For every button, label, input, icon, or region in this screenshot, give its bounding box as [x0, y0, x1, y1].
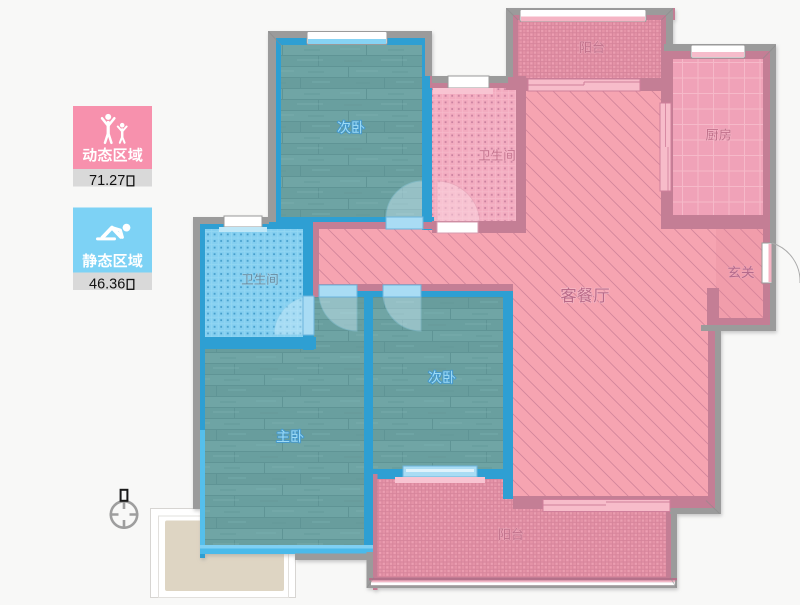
svg-text:71.27: 71.27: [89, 173, 125, 189]
svg-text:46.36: 46.36: [89, 277, 125, 293]
